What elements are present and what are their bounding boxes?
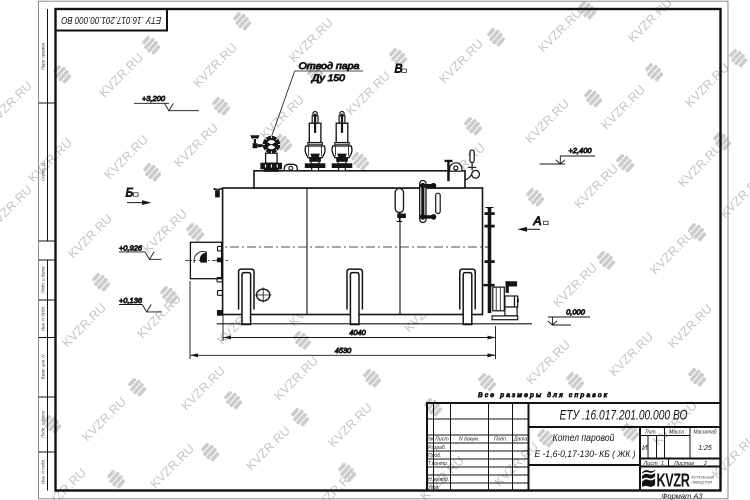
svg-text:+2,400: +2,400 [568, 146, 592, 155]
svg-text:KVZR.RU: KVZR.RU [625, 0, 675, 45]
svg-text:KVZR.RU: KVZR.RU [571, 161, 621, 211]
svg-text:1:25: 1:25 [698, 445, 712, 452]
svg-text:Лист: Лист [434, 437, 449, 443]
svg-text:KVZR.RU: KVZR.RU [523, 337, 573, 387]
svg-text:ЕТУ .16.017.201.00.000 ВО: ЕТУ .16.017.201.00.000 ВО [61, 14, 161, 25]
svg-text:KVZR.RU: KVZR.RU [271, 353, 321, 403]
svg-text:KVZR.RU: KVZR.RU [243, 423, 293, 473]
svg-text:KVZR.RU: KVZR.RU [190, 40, 240, 90]
svg-text:KVZR.RU: KVZR.RU [522, 96, 572, 146]
svg-text:KVZR.RU: KVZR.RU [436, 36, 486, 86]
svg-text:KVZR.RU: KVZR.RU [709, 431, 750, 481]
svg-text:KVZR.RU: KVZR.RU [286, 15, 336, 65]
svg-text:ЕТУ .16.017.201.00.000 ВО: ЕТУ .16.017.201.00.000 ВО [560, 408, 688, 423]
svg-text:KVZR: KVZR [657, 471, 690, 491]
svg-text:KVZR.RU: KVZR.RU [65, 211, 115, 261]
svg-text:Формат А3: Формат А3 [661, 492, 703, 500]
svg-text:4040: 4040 [349, 328, 366, 337]
svg-text:ЗАВОД РЭП: ЗАВОД РЭП [692, 481, 713, 485]
svg-text:Б: Б [126, 186, 134, 200]
svg-text:Утв.: Утв. [428, 485, 439, 491]
svg-text:Е -1,6-0,17-130- КБ ( ЖК ): Е -1,6-0,17-130- КБ ( ЖК ) [535, 449, 636, 460]
svg-text:KVZR.RU: KVZR.RU [96, 50, 146, 100]
svg-text:KVZR.RU: KVZR.RU [717, 171, 750, 221]
svg-text:Инв. N подл.: Инв. N подл. [41, 459, 46, 484]
svg-text:Т.контр.: Т.контр. [428, 461, 448, 467]
svg-text:N докум.: N докум. [459, 437, 479, 443]
svg-text:KVZR.RU: KVZR.RU [147, 441, 197, 491]
svg-text:Изм: Изм [427, 437, 433, 443]
svg-text:Котел паровой: Котел паровой [553, 432, 615, 444]
svg-text:+0,136: +0,136 [119, 296, 143, 305]
svg-text:Справ. N: Справ. N [41, 162, 46, 181]
svg-text:2: 2 [703, 461, 707, 467]
svg-text:И: И [642, 443, 648, 452]
svg-text:KVZR.RU: KVZR.RU [675, 140, 725, 190]
svg-text:В: В [395, 62, 403, 76]
svg-text:1: 1 [661, 461, 664, 467]
svg-text:Подп.: Подп. [494, 437, 507, 443]
svg-text:Инв. N дубл.: Инв. N дубл. [41, 306, 46, 331]
svg-text:KVZR.RU: KVZR.RU [343, 68, 393, 118]
svg-text:0,000: 0,000 [566, 307, 586, 316]
svg-text:4530: 4530 [335, 346, 352, 355]
svg-text:KVZR.RU: KVZR.RU [0, 78, 35, 128]
svg-text:Взам. инв. N: Взам. инв. N [41, 354, 46, 380]
svg-text:Проб.: Проб. [428, 453, 441, 459]
svg-text:Масштаб: Масштаб [693, 430, 717, 436]
svg-text:Н.контр.: Н.контр. [428, 477, 449, 483]
svg-text:Лист: Лист [643, 461, 659, 467]
svg-text:Масса: Масса [669, 430, 684, 436]
svg-text:KVZR.RU: KVZR.RU [647, 227, 697, 277]
svg-text:KVZR.RU: KVZR.RU [101, 132, 151, 182]
svg-text:Разраб.: Разраб. [428, 445, 446, 451]
svg-text:Отвод пара: Отвод пара [299, 61, 360, 72]
svg-text:KVZR.RU: KVZR.RU [550, 260, 600, 310]
svg-text:KVZR.RU: KVZR.RU [665, 301, 715, 351]
svg-text:KVZR.RU: KVZR.RU [178, 363, 228, 413]
svg-text:КОТЕЛЬНЫЙ: КОТЕЛЬНЫЙ [692, 476, 715, 480]
svg-text:KVZR.RU: KVZR.RU [171, 120, 221, 170]
svg-text:KVZR.RU: KVZR.RU [79, 394, 129, 444]
svg-text:KVZR.RU: KVZR.RU [0, 182, 35, 232]
svg-text:Все размеры для справок: Все размеры для справок [478, 391, 608, 399]
svg-text:+3,200: +3,200 [142, 94, 166, 103]
svg-text:KVZR.RU: KVZR.RU [325, 400, 375, 450]
svg-text:Перв. примен.: Перв. примен. [41, 42, 46, 71]
svg-text:KVZR.RU: KVZR.RU [535, 5, 585, 55]
svg-text:А: А [533, 214, 542, 228]
svg-text:Подп. и дата: Подп. и дата [41, 410, 46, 438]
svg-text:Подп. и дата: Подп. и дата [41, 266, 46, 294]
svg-text:KVZR.RU: KVZR.RU [650, 398, 700, 448]
svg-text:KVZR.RU: KVZR.RU [39, 465, 89, 500]
svg-text:KVZR.RU: KVZR.RU [257, 92, 307, 142]
svg-text:+0,926: +0,926 [119, 243, 143, 252]
svg-text:KVZR.RU: KVZR.RU [606, 329, 656, 379]
svg-text:Листов: Листов [673, 461, 694, 467]
svg-text:Ду 150: Ду 150 [311, 73, 346, 84]
svg-text:Дата: Дата [513, 437, 527, 443]
svg-text:KVZR.RU: KVZR.RU [25, 135, 75, 185]
svg-text:KVZR.RU: KVZR.RU [682, 60, 732, 110]
svg-text:KVZR.RU: KVZR.RU [598, 82, 648, 132]
svg-text:Лит.: Лит. [644, 430, 657, 436]
svg-text:KVZR.RU: KVZR.RU [59, 300, 109, 350]
svg-text:KVZR.RU: KVZR.RU [140, 206, 190, 256]
